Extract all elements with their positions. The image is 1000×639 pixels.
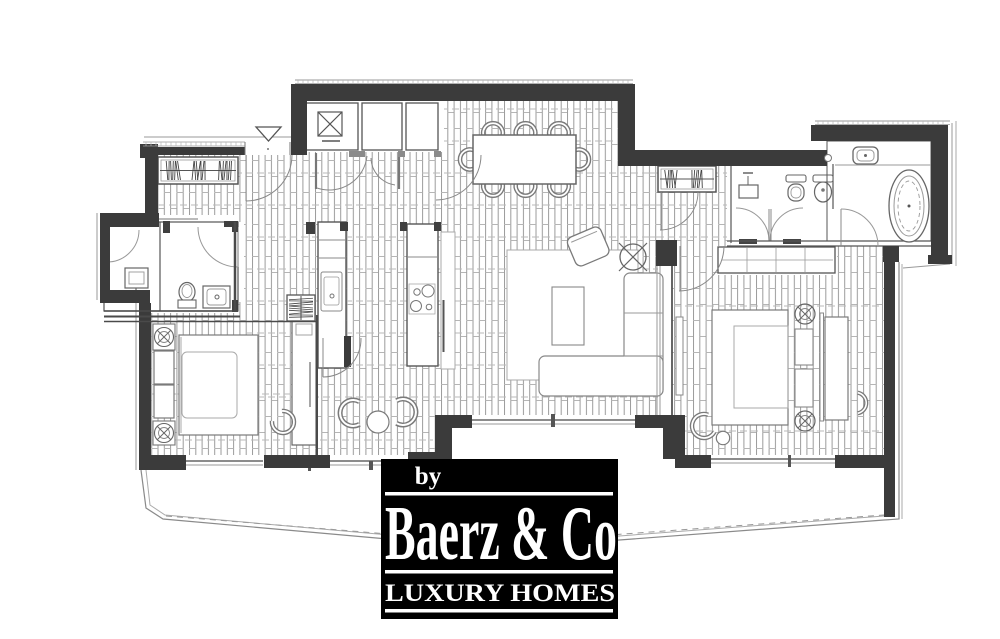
svg-text:LUXURY HOMES: LUXURY HOMES — [385, 580, 615, 607]
svg-text:Baerz & Co: Baerz & Co — [385, 490, 617, 576]
svg-text:by: by — [415, 463, 442, 490]
